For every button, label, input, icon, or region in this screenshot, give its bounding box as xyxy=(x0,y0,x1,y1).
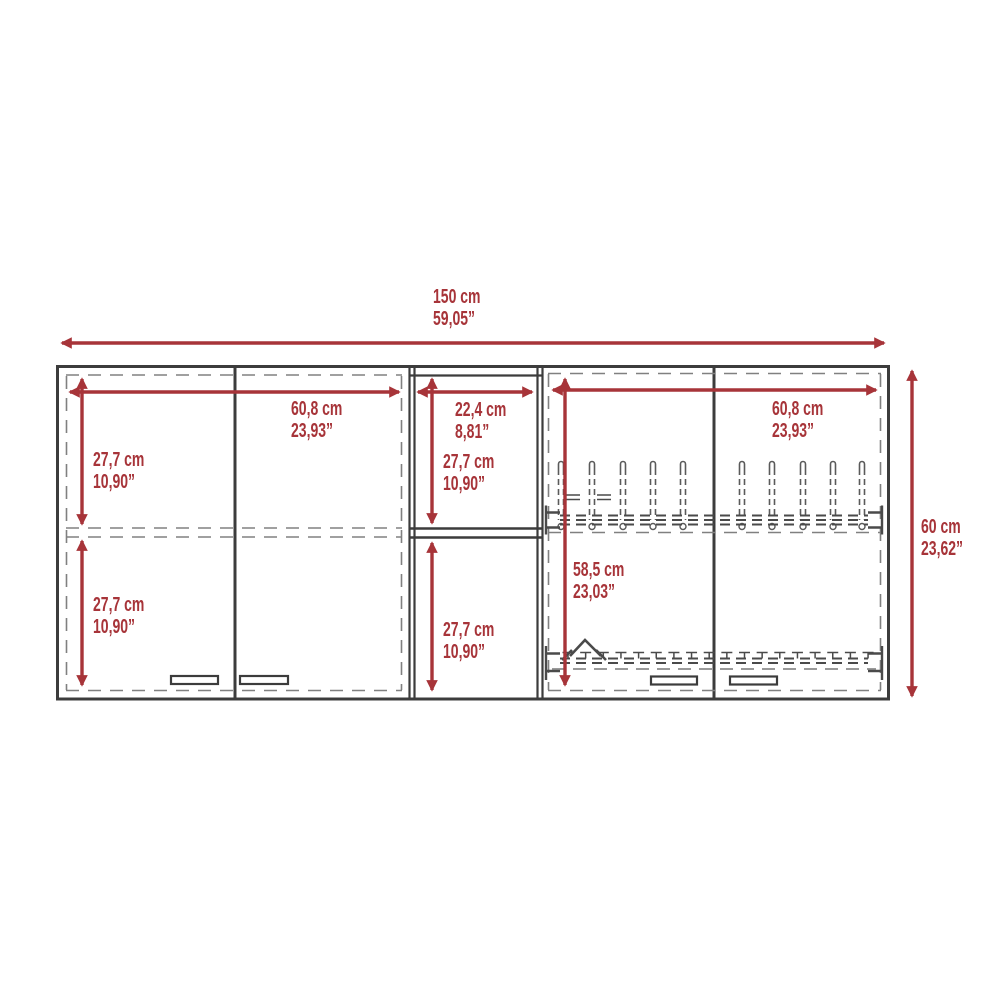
dim-value-cm: 27,7 cm xyxy=(93,594,144,616)
dim-value-cm: 60,8 cm xyxy=(291,398,342,420)
door-handle xyxy=(651,677,697,685)
cabinet-dimension-diagram: 150 cm 59,05” 60 cm 23,62” 60,8 cm 23,93… xyxy=(0,0,1000,1000)
dim-value-cm: 60 cm xyxy=(921,516,963,538)
dim-value-inch: 10,90” xyxy=(443,641,494,663)
dim-value-inch: 8,81” xyxy=(455,421,506,443)
dim-right-section-width-label: 60,8 cm 23,93” xyxy=(772,398,823,442)
cabinet-drawing xyxy=(0,0,1000,1000)
dim-left-section-width-label: 60,8 cm 23,93” xyxy=(291,398,342,442)
dim-value-inch: 23,03” xyxy=(573,581,624,603)
dim-value-cm: 58,5 cm xyxy=(573,559,624,581)
dim-value-inch: 23,62” xyxy=(921,538,963,560)
dim-left-lower-height-label: 27,7 cm 10,90” xyxy=(93,594,144,638)
dim-value-cm: 27,7 cm xyxy=(443,619,494,641)
dim-value-inch: 10,90” xyxy=(93,471,144,493)
dim-value-inch: 23,93” xyxy=(291,420,342,442)
dim-value-inch: 23,93” xyxy=(772,420,823,442)
door-handle xyxy=(171,676,218,684)
dim-right-section-height-label: 58,5 cm 23,03” xyxy=(573,559,624,603)
dim-middle-section-width-label: 22,4 cm 8,81” xyxy=(455,399,506,443)
dim-value-cm: 60,8 cm xyxy=(772,398,823,420)
dim-middle-lower-height-label: 27,7 cm 10,90” xyxy=(443,619,494,663)
dim-value-cm: 27,7 cm xyxy=(443,451,494,473)
door-handle xyxy=(240,676,288,684)
dim-middle-upper-height-label: 27,7 cm 10,90” xyxy=(443,451,494,495)
dim-value-cm: 27,7 cm xyxy=(93,449,144,471)
dim-overall-width-label: 150 cm 59,05” xyxy=(433,286,480,330)
dim-value-cm: 22,4 cm xyxy=(455,399,506,421)
rack-prong-foot xyxy=(650,524,656,530)
door-handle xyxy=(730,677,777,685)
dim-overall-height-label: 60 cm 23,62” xyxy=(921,516,963,560)
dim-left-upper-height-label: 27,7 cm 10,90” xyxy=(93,449,144,493)
dim-value-inch: 10,90” xyxy=(443,473,494,495)
dim-value-inch: 10,90” xyxy=(93,616,144,638)
dim-value-inch: 59,05” xyxy=(433,308,480,330)
dim-value-cm: 150 cm xyxy=(433,286,480,308)
